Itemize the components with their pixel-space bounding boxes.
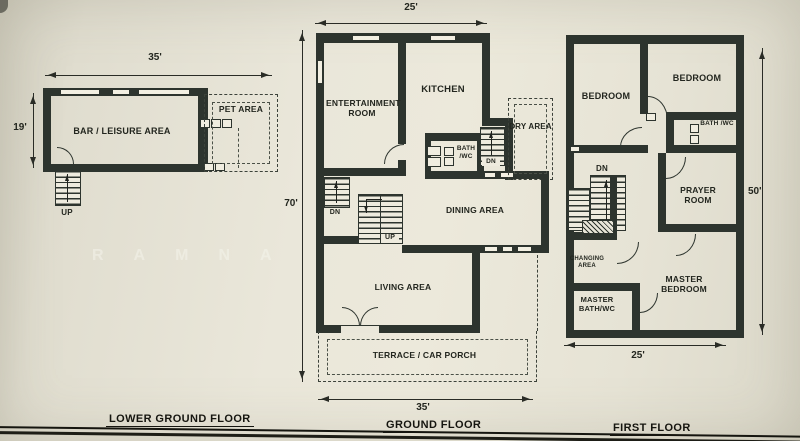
dim-bottom-arrow xyxy=(564,345,726,346)
first-floor-title: FIRST FLOOR xyxy=(610,422,694,436)
door-arc xyxy=(620,127,642,147)
dim-right-label: 50' xyxy=(748,186,772,197)
door-arc xyxy=(676,234,696,256)
door-arc xyxy=(640,293,658,313)
door-arc xyxy=(666,157,686,179)
first-floor-plan: 50' 25' DN BEDROOM BEDR xyxy=(0,0,800,441)
master-bedroom-label: MASTER BEDROOM xyxy=(646,274,722,294)
bath-label: BATH /WC xyxy=(700,120,734,128)
prayer-left-wall xyxy=(658,153,666,232)
outer-top-wall xyxy=(566,35,744,44)
door-arc xyxy=(617,242,639,264)
outer-bottom-wall xyxy=(566,330,744,338)
bedroom-left-label: BEDROOM xyxy=(574,91,638,102)
bedroom-right-label: BEDROOM xyxy=(662,73,732,84)
bedroom-right-bottom-wall xyxy=(666,112,740,120)
bedroom-divider-wall xyxy=(640,44,648,114)
master-bath-label: MASTER BATH/WC xyxy=(568,296,626,314)
changing-area-label: CHANGING AREA xyxy=(564,256,610,270)
master-bath-right-wall xyxy=(632,291,640,330)
window xyxy=(570,146,580,152)
dim-bottom-label: 25' xyxy=(624,350,652,361)
wardrobe xyxy=(582,220,614,234)
stair-arrow xyxy=(606,180,607,224)
lower-ground-floor-title: LOWER GROUND FLOOR xyxy=(106,413,254,427)
ground-floor-title: GROUND FLOOR xyxy=(383,419,484,433)
outer-left-wall xyxy=(566,35,574,338)
stair-dn-label: DN xyxy=(592,164,612,173)
sink-fixture xyxy=(690,135,699,144)
prayer-room-label: PRAYER ROOM xyxy=(674,185,722,205)
dim-right-arrow xyxy=(762,48,763,335)
prayer-bottom-wall xyxy=(658,224,744,232)
bath-bottom-wall xyxy=(666,145,744,153)
outer-right-wall xyxy=(736,44,744,338)
master-bath-top-wall xyxy=(566,283,640,291)
toilet-fixture xyxy=(690,124,699,133)
door-jamb xyxy=(646,113,656,121)
floor-plan-sheet: RAMNA 35' 19' UP PET AREA BAR / LEISURE … xyxy=(0,0,800,441)
